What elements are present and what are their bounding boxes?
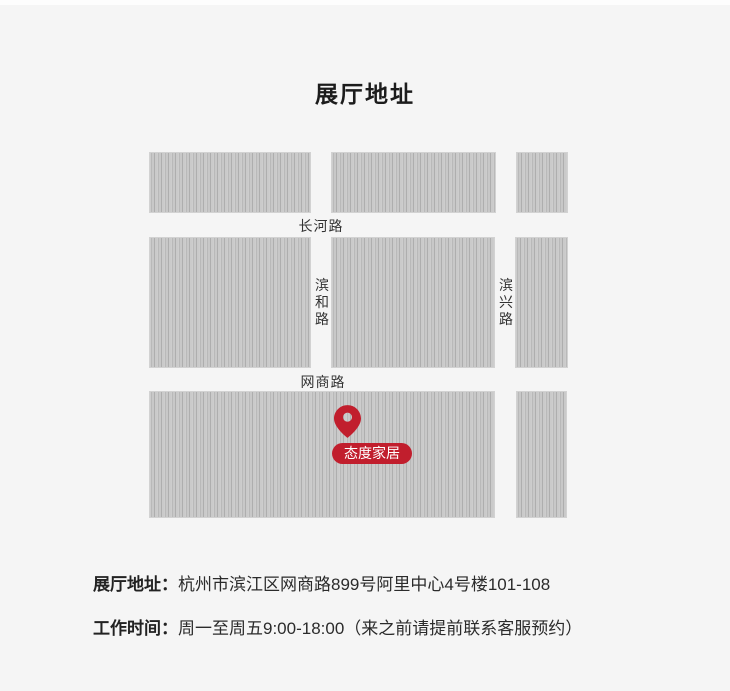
marker-label: 态度家居	[332, 443, 412, 464]
location-pin-icon	[334, 405, 361, 438]
city-block	[331, 152, 496, 213]
hours-line: 工作时间：周一至周五9:00-18:00（来之前请提前联系客服预约）	[93, 614, 582, 639]
road-label-changhe: 长河路	[299, 216, 344, 236]
city-block-showroom	[149, 391, 495, 518]
road-label-wangshang: 网商路	[301, 372, 346, 392]
city-block	[149, 237, 311, 368]
hours-value: 周一至周五9:00-18:00（来之前请提前联系客服预约）	[178, 619, 582, 638]
city-block	[331, 237, 495, 368]
city-block	[516, 152, 568, 213]
city-block	[515, 237, 568, 368]
city-block	[149, 152, 311, 213]
city-block	[516, 391, 567, 518]
hours-label: 工作时间：	[93, 619, 178, 638]
top-divider	[0, 0, 730, 5]
address-label: 展厅地址：	[93, 575, 178, 594]
page-title: 展厅地址	[0, 75, 730, 109]
road-label-binxing: 滨兴路	[496, 278, 516, 329]
address-value: 杭州市滨江区网商路899号阿里中心4号楼101-108	[178, 575, 550, 594]
address-line: 展厅地址：杭州市滨江区网商路899号阿里中心4号楼101-108	[93, 570, 550, 595]
road-label-binhe: 滨和路	[312, 278, 332, 329]
